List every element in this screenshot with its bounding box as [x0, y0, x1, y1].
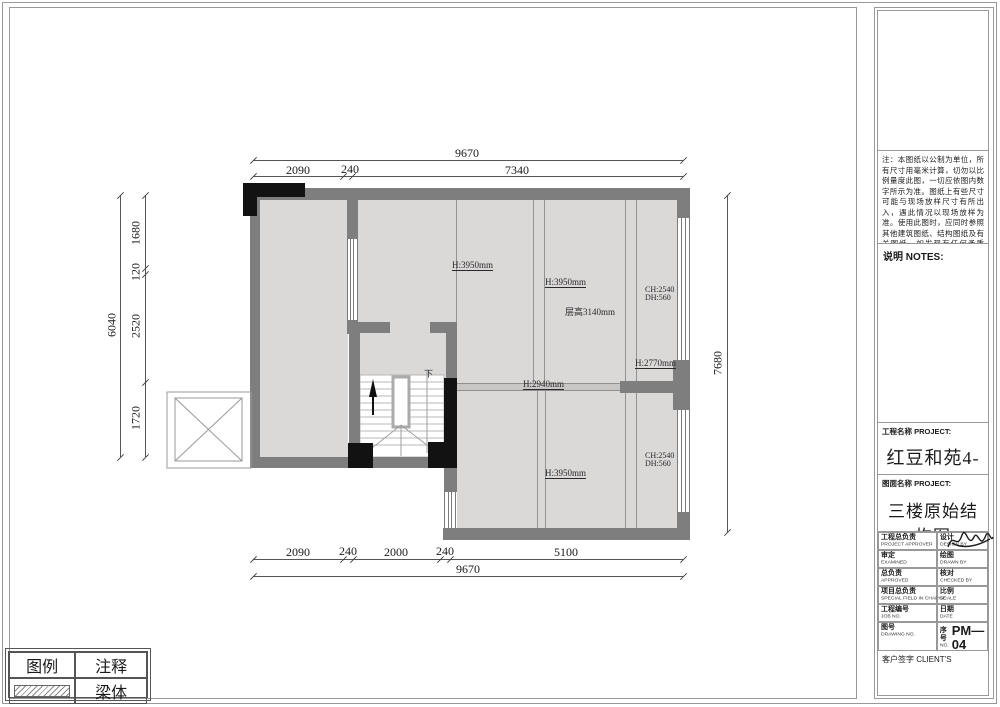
cell-zh: 工程编号 [881, 606, 934, 614]
client-sign-label: 客户签字 CLIENT'S [882, 654, 984, 665]
dim-line [120, 195, 121, 457]
drawing-sheet: H:3950mm H:3950mm 层高3140mm CH:2540 DH:56… [0, 0, 1000, 707]
stair-right-wall [446, 333, 457, 382]
legend-table: 图例 注释 梁体 [8, 651, 148, 698]
dim-line [253, 160, 683, 161]
cell-zh: 总负责 [881, 570, 934, 578]
beam-line [533, 200, 534, 383]
height-label: H:3950mm [545, 468, 586, 479]
stair-right-column [444, 378, 457, 448]
stair-down-label: 下 [424, 367, 433, 380]
table-cell: 比例 SCALE [937, 586, 988, 604]
height-label: H:2940mm [523, 379, 564, 390]
height-label: H:3950mm [545, 277, 586, 288]
cell-en: SPECIAL FIELD IN CHARGE [881, 596, 929, 601]
project-name-box: 工程名称 PROJECT: 红豆和苑4-305 [877, 422, 989, 475]
height-label: H:3950mm [452, 260, 493, 271]
notes-header: 说明 NOTES: [883, 248, 983, 263]
left-room-floor [258, 199, 348, 458]
stair-bottom-wall [373, 457, 430, 468]
bottom-wall [443, 528, 690, 540]
beam-line [625, 391, 626, 528]
right-wall [677, 188, 690, 218]
approval-table: 工程总负责 PROJECT APPROVER 设计 DESIGN BY 审定 E… [877, 531, 989, 651]
interior-wall [349, 333, 360, 445]
dim-bottom-seg: 2000 [384, 545, 408, 560]
stair-right-flange [430, 322, 457, 333]
left-room-bottom-wall [250, 457, 350, 468]
legend-beam-label: 梁体 [95, 679, 127, 703]
table-cell: 工程编号 JOB NO. [878, 604, 937, 622]
cell-zh: 图号 [881, 624, 934, 632]
dim-right-total: 7680 [711, 351, 726, 375]
cell-en: SCALE [940, 596, 981, 601]
dim-bottom-seg: 2090 [286, 545, 310, 560]
cell-zh: 审定 [881, 552, 934, 560]
dim-left-seg: 1680 [129, 221, 144, 245]
dim-bottom-seg: 5100 [554, 545, 578, 560]
main-room-floor [358, 199, 677, 383]
cell-en: EXAMINED [881, 560, 929, 565]
title-block: 注：本图纸以公制为单位，所有尺寸用毫米计算，切勿以比例量度此图，一切应依图内数字… [874, 7, 994, 699]
cell-zh: 核对 [940, 570, 985, 578]
dim-line [145, 195, 146, 457]
beam-line [636, 200, 637, 383]
ch-dh-label: CH:2540 DH:560 [645, 452, 674, 468]
dim-left-seg: 120 [129, 263, 144, 281]
bottom-room-left-wall [444, 468, 457, 492]
beam-line [537, 391, 538, 528]
cell-zh: 绘图 [940, 552, 985, 560]
legend-title: 图例 [26, 653, 58, 677]
cell-zh: 比例 [940, 588, 985, 596]
corner-column [243, 183, 257, 216]
drawing-name-box: 图面名称 PROJECT: 三楼原始结构图 [877, 474, 989, 532]
dim-left-total: 6040 [105, 313, 120, 337]
interior-wall [347, 197, 358, 239]
cell-zh: 日期 [940, 606, 985, 614]
table-cell: 日期 DATE [937, 604, 988, 622]
legend-beam-label-cell: 梁体 [75, 678, 147, 704]
window [444, 492, 456, 528]
height-label: H:2770mm [635, 358, 676, 369]
dim-line [253, 176, 683, 177]
project-name-label: 工程名称 PROJECT: [882, 426, 984, 437]
titleblock-shuoming-box: 说明 NOTES: [877, 243, 989, 423]
cell-en: CHECKED BY [940, 578, 981, 583]
table-cell: 审定 EXAMINED [878, 550, 937, 568]
shaft-x-box [166, 391, 252, 469]
dim-top-total: 9670 [455, 146, 479, 161]
dim-bottom-total: 9670 [456, 562, 480, 577]
titleblock-empty-box [877, 10, 989, 151]
cell-zh: 序号 [940, 627, 950, 643]
beam-line [544, 200, 545, 383]
table-cell: 核对 CHECKED BY [937, 568, 988, 586]
titleblock-notes-box: 注：本图纸以公制为单位，所有尺寸用毫米计算，切勿以比例量度此图，一切应依图内数字… [877, 150, 989, 244]
dim-line [727, 195, 728, 532]
window [347, 239, 358, 320]
dim-left-seg: 1720 [129, 406, 144, 430]
client-sign-box: 客户签字 CLIENT'S [877, 650, 989, 696]
beam-line [625, 200, 626, 383]
ch-dh-label: CH:2540 DH:560 [645, 286, 674, 302]
drawing-name-label: 图面名称 PROJECT: [882, 478, 984, 489]
legend-beam-swatch-cell [9, 678, 75, 704]
table-cell: 项目总负责 SPECIAL FIELD IN CHARGE [878, 586, 937, 604]
table-cell: 设计 DESIGN BY [937, 532, 988, 550]
table-cell: 总负责 APPROVED [878, 568, 937, 586]
cell-en: DATE [940, 614, 981, 619]
beam-hatch-swatch [14, 685, 70, 697]
beam-line [545, 391, 546, 528]
storey-height-label: 层高3140mm [565, 305, 615, 318]
dh-value: DH:560 [645, 293, 671, 302]
table-cell: 绘图 DRAWN BY [937, 550, 988, 568]
dh-value: DH:560 [645, 459, 671, 468]
legend-note-header-cell: 注释 [75, 652, 147, 678]
cell-en: NO. [940, 643, 949, 648]
window [677, 410, 690, 512]
dim-left-seg: 2520 [129, 314, 144, 338]
interior-wall-flange [347, 322, 390, 333]
legend-title-cell: 图例 [9, 652, 75, 678]
top-wall [243, 188, 690, 200]
table-cell: 工程总负责 PROJECT APPROVER [878, 532, 937, 550]
cell-en: DRAWING NO. [881, 632, 929, 637]
bottom-room-floor [457, 391, 677, 528]
right-wall [677, 512, 690, 540]
cell-zh: 工程总负责 [881, 534, 934, 542]
legend-note-header: 注释 [95, 653, 127, 677]
corner-column [348, 443, 373, 468]
cell-en: DRAWN BY [940, 560, 981, 565]
dim-line [253, 559, 683, 560]
cell-en: PROJECT APPROVER [881, 542, 929, 547]
cell-en: APPROVED [881, 578, 929, 583]
cell-zh: 项目总负责 [881, 588, 934, 596]
window [677, 218, 690, 360]
cell-en: JOB NO. [881, 614, 929, 619]
serial-number: PM—04 [952, 624, 985, 652]
beam-line [636, 391, 637, 528]
